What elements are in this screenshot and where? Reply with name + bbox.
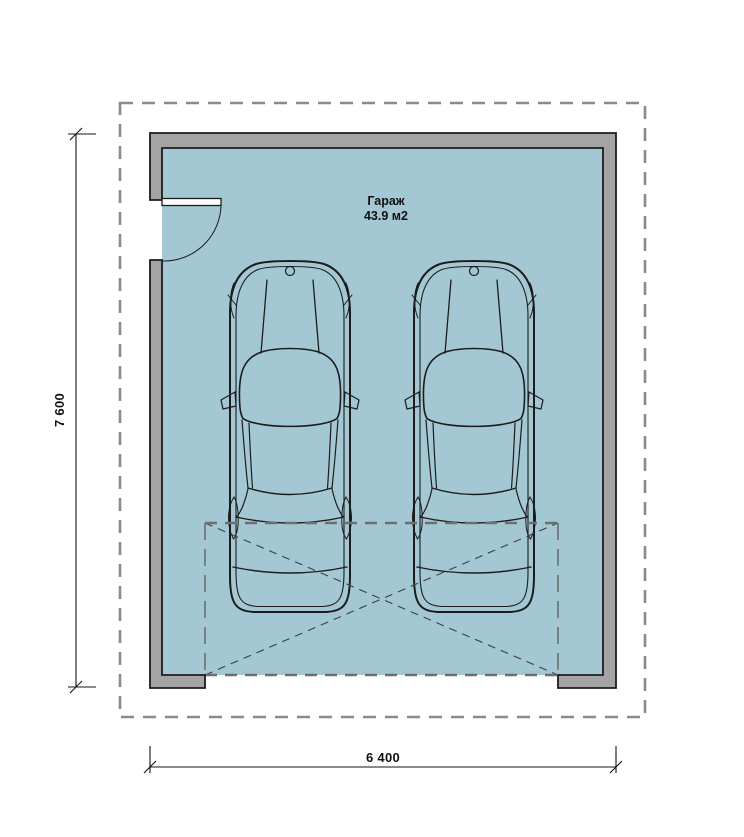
dimension-vertical [68, 128, 96, 693]
dim-horizontal-label: 6 400 [366, 750, 400, 765]
room-name-label: Гараж [367, 194, 404, 208]
entry-door-leaf [162, 199, 221, 206]
floor-plan-svg: 7 600 6 400 Гараж 43.9 м2 [0, 0, 744, 837]
room-area-label: 43.9 м2 [364, 209, 408, 223]
garage-floor [162, 148, 604, 675]
floor-plan-page: 7 600 6 400 Гараж 43.9 м2 [0, 0, 744, 837]
dim-vertical-label: 7 600 [52, 393, 67, 427]
